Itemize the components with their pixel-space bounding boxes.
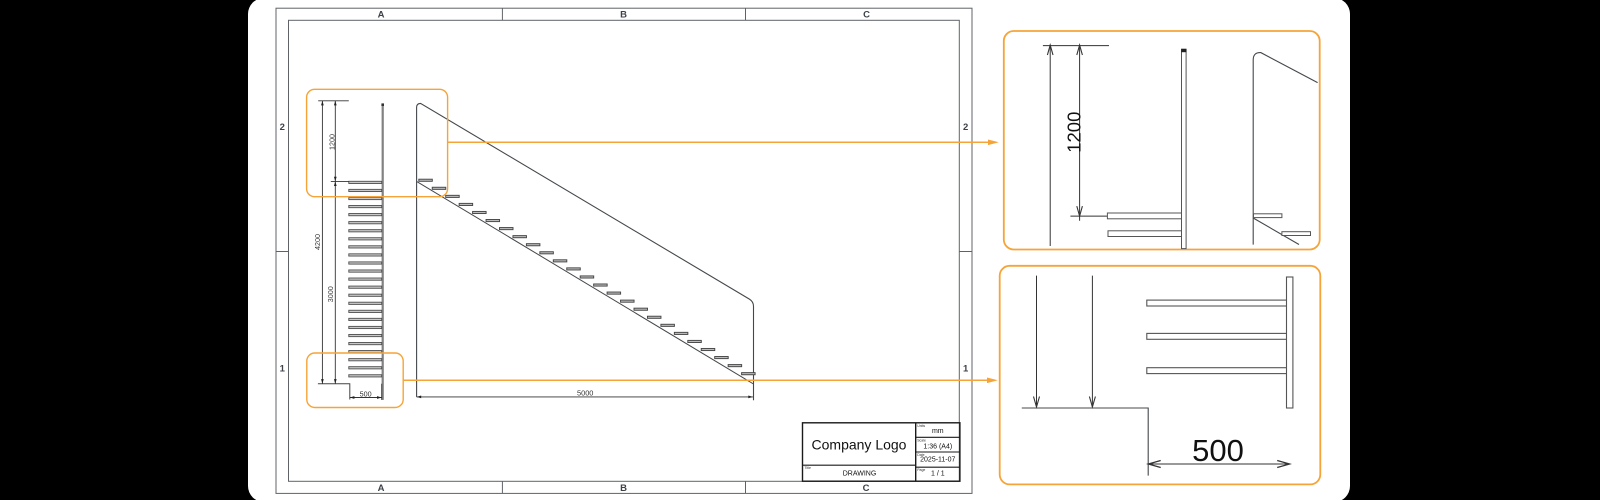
- svg-text:1200: 1200: [327, 134, 336, 150]
- svg-text:5000: 5000: [577, 388, 593, 397]
- svg-text:DRAWING: DRAWING: [843, 471, 877, 478]
- svg-text:Company Logo: Company Logo: [812, 437, 907, 453]
- svg-text:3000: 3000: [326, 286, 335, 302]
- svg-text:2025-11-07: 2025-11-07: [920, 457, 955, 464]
- svg-text:1: 1: [963, 363, 969, 374]
- svg-text:mm: mm: [932, 428, 944, 435]
- svg-text:Page: Page: [917, 468, 925, 472]
- svg-text:Title: Title: [805, 466, 812, 470]
- svg-text:A: A: [378, 10, 385, 21]
- svg-text:B: B: [620, 10, 627, 21]
- svg-text:1: 1: [280, 363, 286, 374]
- svg-text:Units: Units: [917, 424, 925, 428]
- svg-text:1 / 1: 1 / 1: [931, 471, 945, 478]
- svg-text:Scale: Scale: [917, 438, 926, 442]
- svg-text:500: 500: [360, 389, 372, 398]
- svg-text:1:36 (A4): 1:36 (A4): [923, 443, 952, 450]
- svg-text:2: 2: [280, 122, 285, 133]
- svg-text:C: C: [863, 483, 870, 494]
- svg-text:1200: 1200: [1064, 112, 1085, 153]
- svg-text:A: A: [378, 483, 385, 494]
- svg-text:4200: 4200: [313, 234, 322, 250]
- svg-text:C: C: [863, 10, 870, 21]
- svg-text:500: 500: [1192, 433, 1244, 468]
- svg-text:B: B: [620, 483, 627, 494]
- svg-text:2: 2: [963, 122, 968, 133]
